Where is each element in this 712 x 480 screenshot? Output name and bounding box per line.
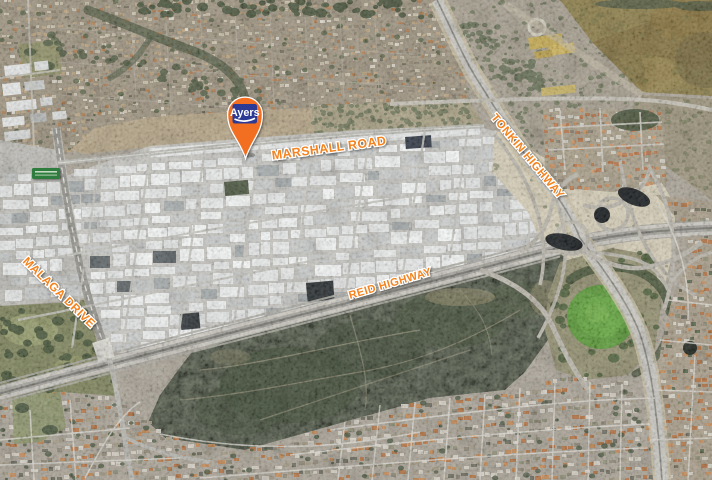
svg-text:Ayers: Ayers — [230, 107, 260, 119]
